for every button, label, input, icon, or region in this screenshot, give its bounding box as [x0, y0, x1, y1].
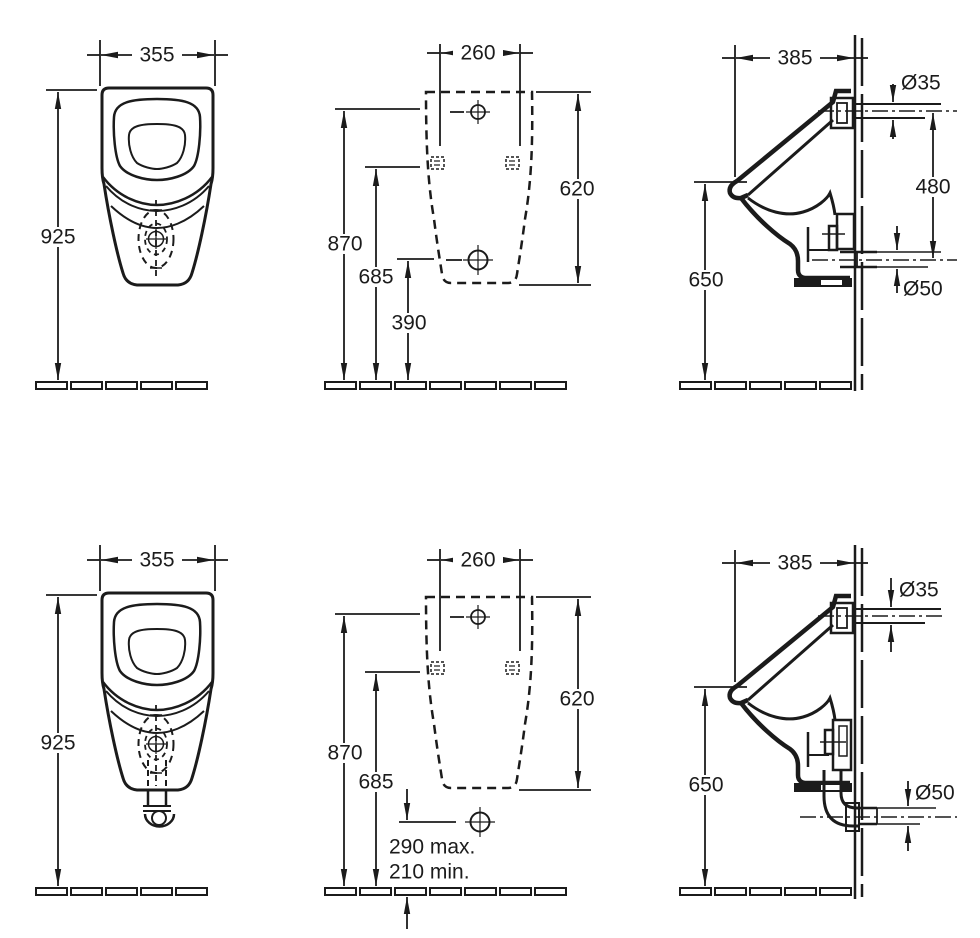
- inner-basin: [129, 124, 185, 169]
- inner-basin: [129, 629, 185, 674]
- front-view-top: 355 925: [33, 40, 228, 389]
- front-lip: [730, 686, 748, 703]
- dim-side-inlet-dia: Ø35: [901, 72, 941, 95]
- dim-back-body-height: 620: [559, 688, 594, 711]
- water-inlet-mark: [450, 100, 490, 124]
- fixing-bolt-right: [506, 662, 519, 674]
- p-trap: [824, 770, 877, 831]
- dim-front-height: 925: [40, 732, 75, 755]
- floor-hatch: [680, 888, 851, 895]
- back-view-top: 260 870 685: [319, 42, 603, 390]
- dim-side-lip-height: 650: [688, 774, 723, 797]
- back-view-bottom: 260 870 685 620: [319, 549, 603, 930]
- outlet-box: [833, 720, 851, 770]
- dim-back-fixing-height: 685: [358, 266, 393, 289]
- dim-side-inlet-dia: Ø35: [899, 579, 939, 602]
- outlet-flange: [829, 226, 837, 250]
- drawing-canvas: 355 925: [0, 0, 980, 938]
- urinal-installation-drawing: 355 925: [0, 0, 980, 938]
- fixing-bolt-left: [431, 662, 444, 674]
- dim-back-spread: 260: [460, 42, 495, 65]
- deck-outline: [737, 91, 851, 181]
- rim-inner-edge: [748, 625, 833, 700]
- dim-side-outlet-dia: Ø50: [915, 782, 955, 805]
- outlet-mark: [399, 807, 495, 837]
- bowl-inner-profile: [748, 698, 835, 720]
- bowl-inner-profile: [748, 193, 835, 215]
- dim-back-outlet-max: 290 max.: [389, 836, 475, 859]
- floor-hatch: [325, 888, 566, 895]
- floor-hatch: [680, 382, 851, 389]
- spreader-slot: [837, 608, 847, 628]
- rim-inner-edge: [748, 120, 833, 195]
- dim-front-width: 355: [139, 44, 174, 67]
- dim-side-depth: 385: [777, 47, 812, 70]
- floor-hatch: [36, 888, 207, 895]
- urinal-body-outline: [102, 88, 213, 285]
- outlet-mark: [446, 245, 493, 275]
- siphon-elbow-inner: [152, 811, 166, 825]
- flush-target-mark: [139, 705, 174, 786]
- rim-lip-curve-2: [106, 186, 209, 211]
- dim-back-body-height: 620: [559, 178, 594, 201]
- foot-bar-inset: [821, 280, 842, 285]
- water-inlet-mark: [450, 605, 490, 629]
- rim-lip-curve-2: [106, 691, 209, 716]
- floor-hatch: [325, 382, 566, 389]
- deck-outline: [737, 596, 851, 686]
- flush-target-mark: [139, 200, 174, 276]
- dim-side-inlet-outlet-dist: 480: [915, 176, 950, 199]
- bottom-siphon: [143, 760, 174, 826]
- fixing-bolt-left: [431, 157, 444, 169]
- dim-back-fixing-height: 685: [358, 771, 393, 794]
- dim-back-inlet-height: 870: [327, 233, 362, 256]
- dim-back-spread: 260: [460, 549, 495, 572]
- outlet-box-slot: [839, 726, 847, 756]
- mounting-silhouette: [426, 92, 532, 283]
- outlet-box: [837, 214, 854, 249]
- mounting-silhouette: [426, 597, 532, 788]
- front-view-bottom: 355 925: [33, 545, 228, 895]
- urinal-body-outline: [102, 593, 213, 790]
- dim-side-outlet-dia: Ø50: [903, 278, 943, 301]
- dim-front-width: 355: [139, 549, 174, 572]
- bowl-opening: [114, 99, 201, 180]
- dim-side-depth: 385: [777, 552, 812, 575]
- dim-back-outlet-min: 210 min.: [389, 861, 470, 884]
- floor-hatch: [36, 382, 207, 389]
- dim-back-outlet-height: 390: [391, 312, 426, 335]
- dim-side-lip-height: 650: [688, 269, 723, 292]
- side-view-top: 385 Ø35 480 Ø50 6: [680, 35, 959, 391]
- fixing-bolt-right: [506, 157, 519, 169]
- spreader-slot: [837, 103, 847, 123]
- dim-front-height: 925: [40, 226, 75, 249]
- dim-back-inlet-height: 870: [327, 742, 362, 765]
- front-lip: [730, 181, 748, 198]
- bowl-opening: [114, 604, 201, 685]
- side-view-bottom: 385 Ø35 Ø: [680, 545, 957, 899]
